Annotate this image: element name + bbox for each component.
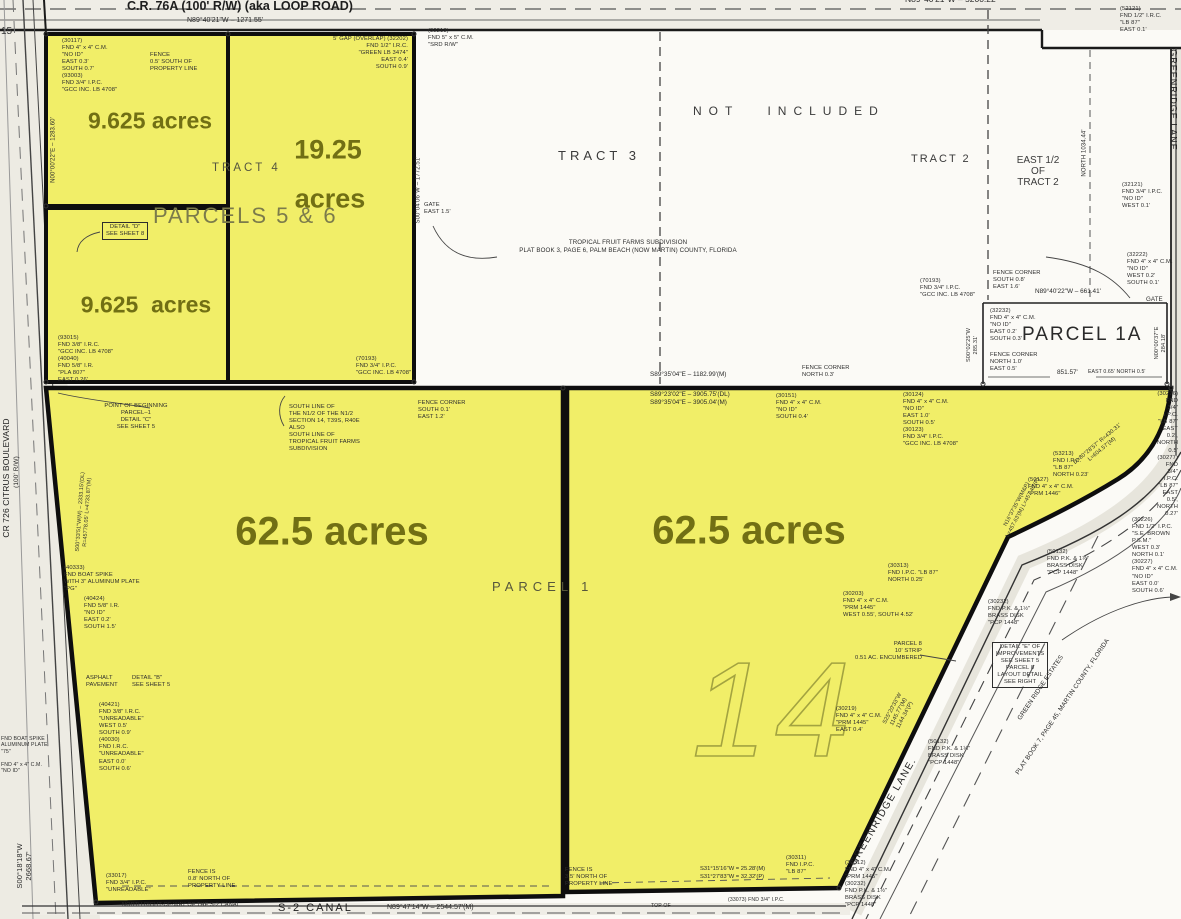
survey-note: FENCE IS 0.8' NORTH OF PROPERTY LINE	[188, 869, 235, 890]
survey-note: 5' GAP (OVERLAP) (32202) FND 1/2" I.R.C.…	[333, 36, 408, 71]
gate-note: GATE EAST 1.5'	[424, 202, 451, 216]
acreage-label-parcel-5: 9.625 acres	[88, 108, 212, 135]
bearing-south-line-dl: S89°23'02"E – 3905.75'(DL) S89°35'04"E –…	[650, 391, 730, 408]
survey-note: FND 4" x 4" C.M. "NO ID"	[1, 762, 42, 775]
survey-note: FENCE CORNER NORTH 0.3'	[802, 365, 850, 379]
survey-note: (32232) FND 4" x 4" C.M. "NO ID" EAST 0.…	[990, 308, 1036, 343]
survey-note: (30124) FND 4" x 4" C.M. "NO ID" EAST 1.…	[903, 392, 958, 449]
survey-note: (30151) FND 4" x 4" C.M. "NO ID" SOUTH 0…	[776, 393, 822, 421]
survey-note: (30312) FND 4" x 4" C.M. "PRM 1445" (302…	[845, 860, 891, 909]
survey-note: FENCE CORNER SOUTH 0.1' EAST 1.2'	[418, 400, 466, 421]
bearing-parcel-1a: N89°40'22"W – 661.41'	[1035, 288, 1101, 296]
road-label-greenridge-vertical: GREENRIDGE LANE	[1168, 49, 1179, 151]
point-of-beginning-note: POINT OF BEGINNING PARCEL–1 DETAIL "C" S…	[88, 403, 184, 431]
survey-note: (30232) FND P.K. & 1½" BRASS DISK "PCP 1…	[988, 599, 1030, 627]
bearing-cr76a: N89°40'21"W – 1271.55'	[187, 16, 263, 25]
edge-number: 15	[1, 26, 12, 37]
survey-note: (32213) FND 5" x 5" C.M. "SRD R/W"	[428, 28, 474, 49]
survey-note: FENCE 0.5' SOUTH OF PROPERTY LINE	[150, 52, 197, 73]
survey-note: (30276) FND 3/4" I.P.C. "LB 87" EAST 0.2…	[1157, 391, 1178, 518]
survey-plat-map: 14 C.R. 76A (100' R/W) (aka LOOP ROAD) N…	[0, 0, 1181, 919]
survey-note: (70193) FND 3/4" I.P.C. "GCC INC. LB 470…	[356, 356, 411, 377]
survey-note: FENCE CORNER NORTH 1.0' EAST 0.5'	[990, 352, 1038, 373]
survey-note: (30219) FND 4" x 4" C.M. "PRM 1445" EAST…	[836, 706, 882, 734]
survey-note: (40421) FND 3/8" I.R.C. "UNREADABLE" WES…	[99, 702, 144, 773]
south-line-note: SOUTH LINE OF THE N1/2 OF THE N1/2 SECTI…	[289, 404, 360, 453]
acreage-label-parcels-5-6-line2: acres	[295, 184, 366, 215]
parcel-1-west-polygon	[46, 388, 563, 903]
dim-west-1283: N00°00'22"E – 1283.60'	[50, 117, 57, 183]
survey-note: (40424) FND 5/8" I.R. "NO ID" EAST 0.2' …	[84, 596, 120, 631]
dim-851: 851.57'	[1057, 369, 1078, 377]
road-label-citrus-blvd: CR 726 CITRUS BOULEVARD	[1, 418, 11, 537]
survey-note: (30311) FND I.P.C. "LB 87"	[786, 855, 814, 876]
acreage-label-parcel-1-east: 62.5 acres	[652, 509, 846, 554]
survey-note: FND BOAT SPIKE ALUMINUM PLATE "75"	[1, 736, 48, 755]
plat-linework: 14	[0, 0, 1181, 919]
parcel-1a-label: PARCEL 1A	[1022, 324, 1142, 346]
bearing-citrus: S00°18'18"W 2668.67'	[15, 843, 33, 888]
detail-e-callout: DETAIL "E" OF IMPROVEMENTS SEE SHEET 5 P…	[992, 642, 1048, 688]
canal-row-label: NORTH RIGHT-OF-WAY OF THE S-2 CANAL	[122, 902, 240, 909]
survey-note: (32121) FND 3/4" I.P.C. "NO ID" WEST 0.1…	[1122, 182, 1163, 210]
survey-note: (32222) FND 4" x 4" C.M. "NO ID" WEST 0.…	[1127, 252, 1173, 287]
survey-note: (33017) FND 3/4" I.P.C. "UNREADABLE"	[106, 873, 151, 894]
dim-north-1034: NORTH 1034.44'	[1081, 129, 1088, 176]
road-label-cr76a: C.R. 76A (100' R/W) (aka LOOP ROAD)	[127, 0, 353, 13]
survey-note: FENCE CORNER SOUTH 0.8' EAST 1.6'	[993, 270, 1041, 291]
parcel-1-label: PARCEL 1	[492, 579, 593, 594]
survey-note: (40333) FND BOAT SPIKE WITH 3" ALUMINUM …	[64, 565, 140, 593]
bearing-canal: N89°47'14"W – 2544.57'(M)	[387, 903, 474, 912]
survey-note: ASPHALT PAVEMENT	[86, 675, 118, 689]
dim-parcel-1a-east: N00°00'37"E 284.18'	[1154, 327, 1168, 360]
canal-label: S-2 CANAL	[278, 902, 353, 914]
survey-note: (50127) FND 4" x 4" C.M. "PRM 1446"	[1028, 477, 1074, 498]
tract-4-label: TRACT 4	[212, 162, 281, 174]
dim-parcel-1a-west: S00°02'25"W 285.31'	[966, 328, 980, 362]
acreage-label-parcel-1-west: 62.5 acres	[235, 510, 429, 555]
tract-2-label: TRACT 2	[911, 153, 971, 165]
survey-note: (93015) FND 3/8" I.R.C. "GCC INC. LB 470…	[58, 335, 113, 384]
east-half-tract-2-label: EAST 1/2 OF TRACT 2	[1007, 155, 1069, 188]
dim-east-1772: S00°04'06"W – 1772.51'	[415, 156, 422, 223]
section-number: 14	[692, 634, 858, 785]
not-included-label: NOT INCLUDED	[693, 104, 885, 118]
gate-note: GATE	[1146, 296, 1163, 304]
survey-note: (30203) FND 4" x 4" C.M. "PRM 1445" WEST…	[843, 591, 913, 619]
bearing-north-line: N89°40'21"W – 5200.22'	[905, 0, 997, 5]
acreage-label-parcels-5-6-line1: 19.25	[294, 135, 362, 166]
survey-note: (53213) FND I.P.C. "LB 87" NORTH 0.23'	[1053, 451, 1089, 479]
detail-b-callout: DETAIL "B" SEE SHEET 5	[132, 675, 170, 689]
bearing-south-line-m: S89°35'04"E – 1182.99'(M)	[650, 371, 726, 379]
parcel-8-strip-note: PARCEL 8 10' STRIP 0.51 AC. ENCUMBERED	[855, 641, 922, 662]
detail-d-callout: DETAIL "D" SEE SHEET 8	[102, 222, 148, 240]
survey-note: (70193) FND 3/4" I.P.C. "GCC INC. LB 470…	[920, 278, 975, 299]
survey-note: FENCE IS 3.5' NORTH OF PROPERTY LINE	[565, 867, 612, 888]
survey-note: (52121) FND 1/2" I.R.C. "LB 87" EAST 0.1…	[1120, 6, 1162, 34]
survey-note: (30313) FND I.P.C. "LB 87" NORTH 0.25'	[888, 563, 938, 584]
tract-3-label: TRACT 3	[558, 148, 640, 163]
survey-note: TOP OF	[651, 903, 671, 909]
survey-note: (33073) FND 3/4" I.P.C.	[728, 897, 785, 903]
survey-note: EAST 0.65' NORTH 0.5'	[1088, 369, 1146, 375]
road-label-citrus-rw: (100' R/W)	[13, 456, 21, 488]
acreage-label-parcel-6: 9.625 acres	[81, 292, 211, 319]
subdivision-plat-note: TROPICAL FRUIT FARMS SUBDIVISION PLAT BO…	[487, 239, 769, 254]
survey-note: (30226) FND 1/2" I.P.C. "S.E. BROWN P.S.…	[1132, 517, 1181, 595]
dim-corner-sw: S31°15'16"W = 25.28'(M) S31°27'83"W = 32…	[700, 866, 765, 881]
survey-note: (50132) FND P.K. & 1½" BRASS DISK "PCP 1…	[1047, 549, 1089, 577]
survey-note: (50132) FND P.K. & 1¼" BRASS DISK "PCP 1…	[928, 739, 970, 767]
survey-note: (30117) FND 4" x 4" C.M. "NO ID" EAST 0.…	[62, 38, 117, 95]
